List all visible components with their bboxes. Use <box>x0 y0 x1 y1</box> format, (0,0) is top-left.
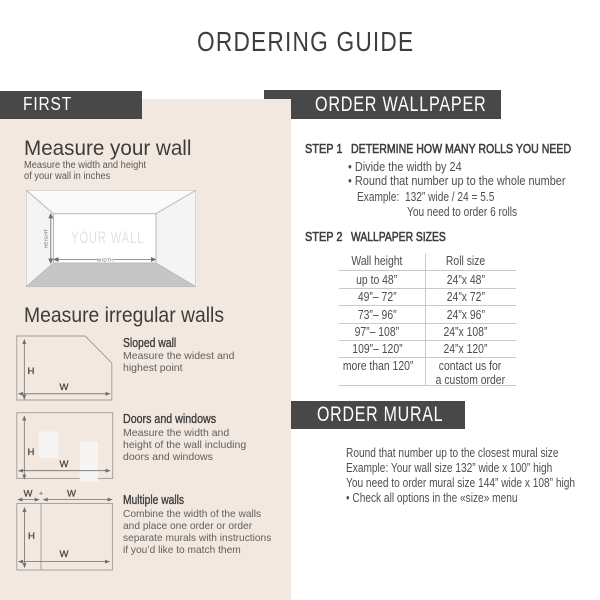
svg-text:W: W <box>60 549 69 560</box>
svg-text:+: + <box>39 491 43 498</box>
svg-text:H: H <box>28 366 35 377</box>
svg-text:W: W <box>24 489 33 500</box>
svg-text:W: W <box>60 459 69 470</box>
svg-text:HEIGHT: HEIGHT <box>44 229 49 249</box>
svg-text:YOUR WALL: YOUR WALL <box>71 228 144 247</box>
svg-text:W: W <box>67 489 76 500</box>
svg-text:WIDTH: WIDTH <box>97 257 114 262</box>
svg-text:W: W <box>60 382 69 393</box>
svg-text:H: H <box>28 531 35 542</box>
svg-text:H: H <box>28 447 35 458</box>
